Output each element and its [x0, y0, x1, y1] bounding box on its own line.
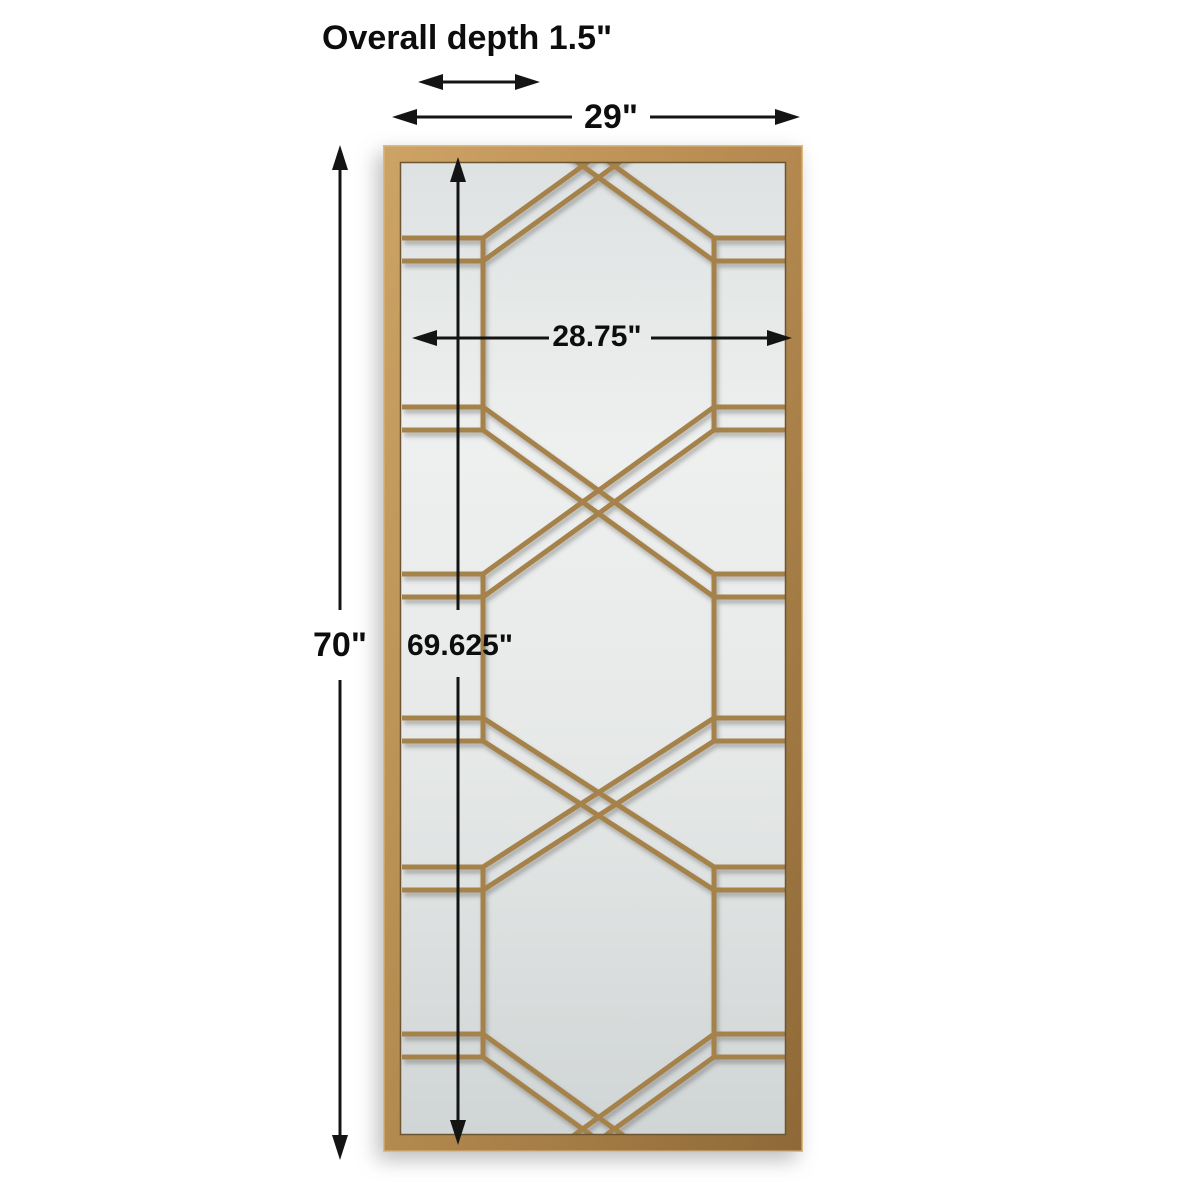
depth-arrow — [418, 74, 540, 90]
diagram-canvas: Overall depth 1.5" 29" 70" 69.625" 28.75… — [0, 0, 1200, 1200]
overall-height-label: 70" — [310, 627, 370, 664]
mirror-width-label: 28.75" — [550, 320, 644, 353]
mirror-height-label: 69.625" — [407, 629, 509, 662]
overall-width-label: 29" — [578, 99, 644, 136]
overall-depth-label: Overall depth 1.5" — [322, 20, 608, 57]
